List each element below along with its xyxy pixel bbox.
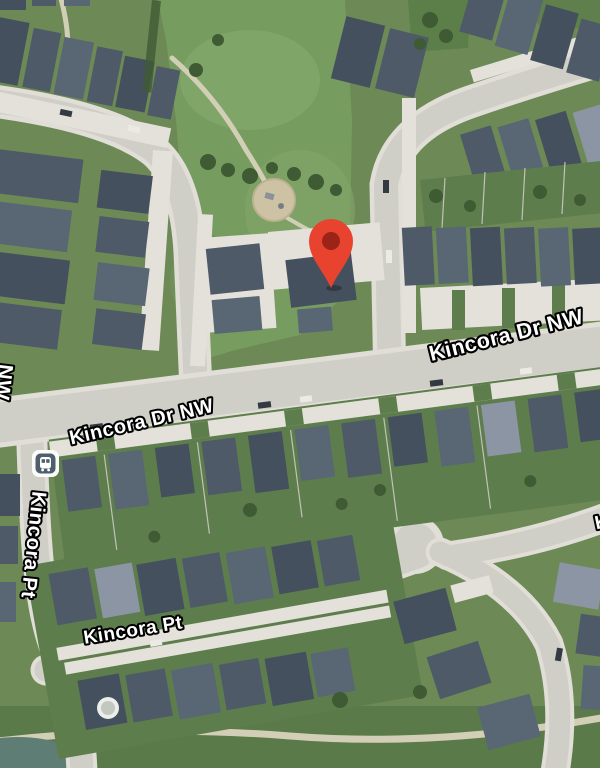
satellite-map[interactable]: Kincora Dr NW Kincora Dr NW Kincora Pt K…	[0, 0, 600, 768]
playground	[253, 179, 295, 221]
transit-stop-icon[interactable]	[32, 450, 59, 477]
pin-shadow	[326, 285, 342, 291]
pin-hole	[322, 232, 340, 250]
satellite-map-image[interactable]: Kincora Dr NW Kincora Dr NW Kincora Pt K…	[0, 0, 600, 768]
